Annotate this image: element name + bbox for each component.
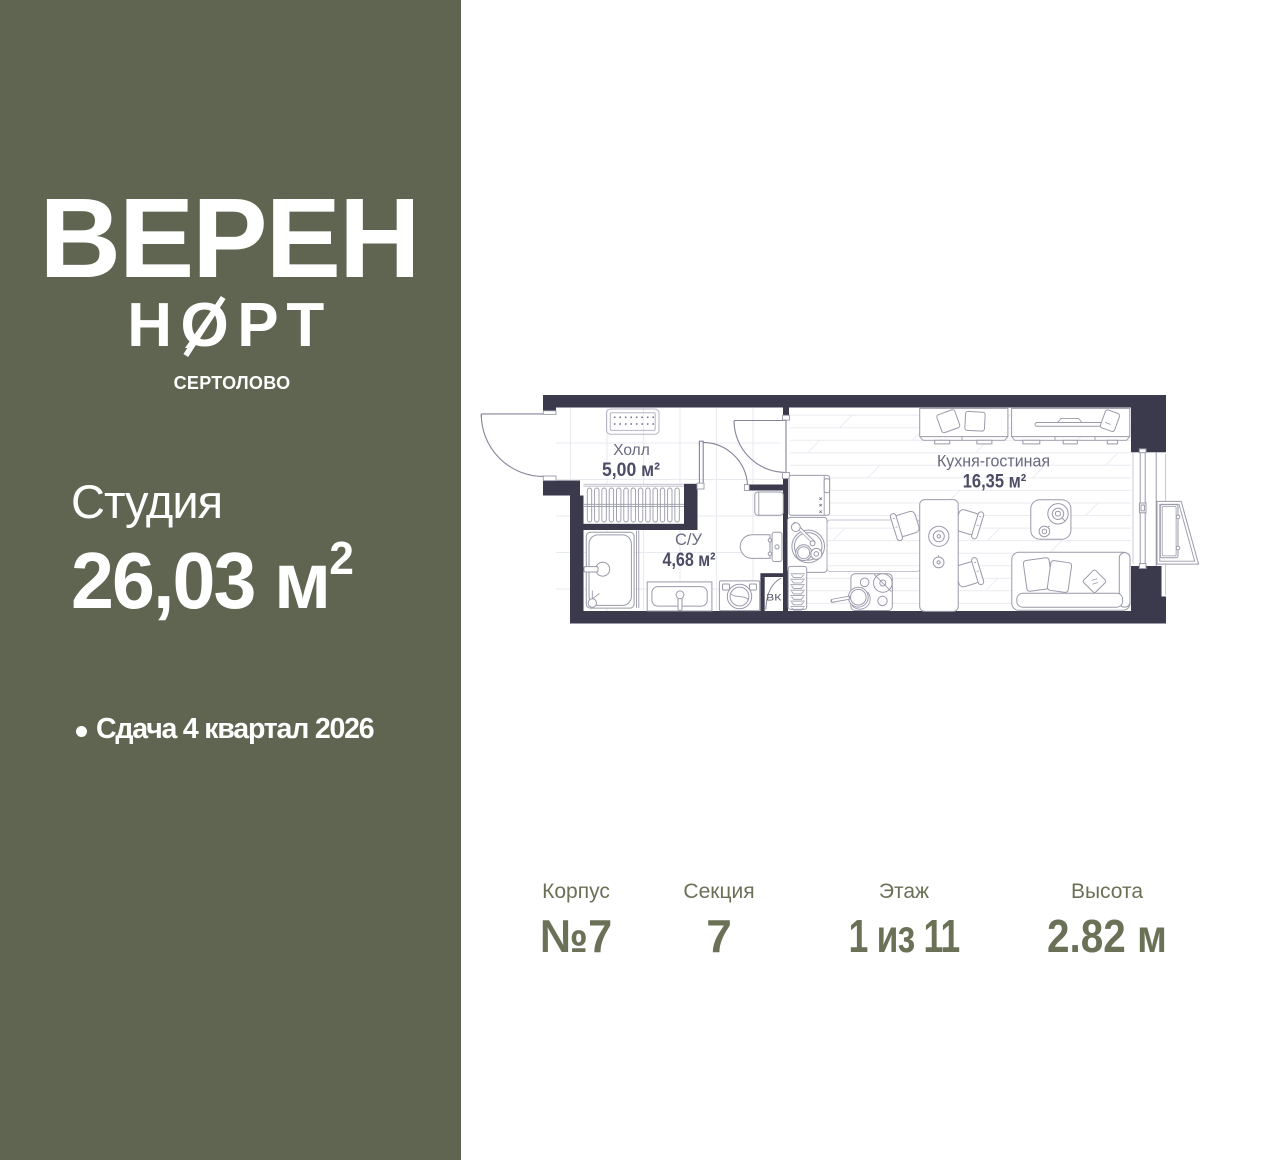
- svg-text:16,35 м²: 16,35 м²: [963, 472, 1027, 493]
- svg-text:Кухня-гостиная: Кухня-гостиная: [937, 453, 1050, 471]
- svg-text:Холл: Холл: [613, 442, 650, 459]
- svg-text:С/У: С/У: [675, 530, 702, 549]
- svg-text:4,68 м²: 4,68 м²: [663, 550, 716, 571]
- svg-text:5,00 м²: 5,00 м²: [602, 460, 660, 481]
